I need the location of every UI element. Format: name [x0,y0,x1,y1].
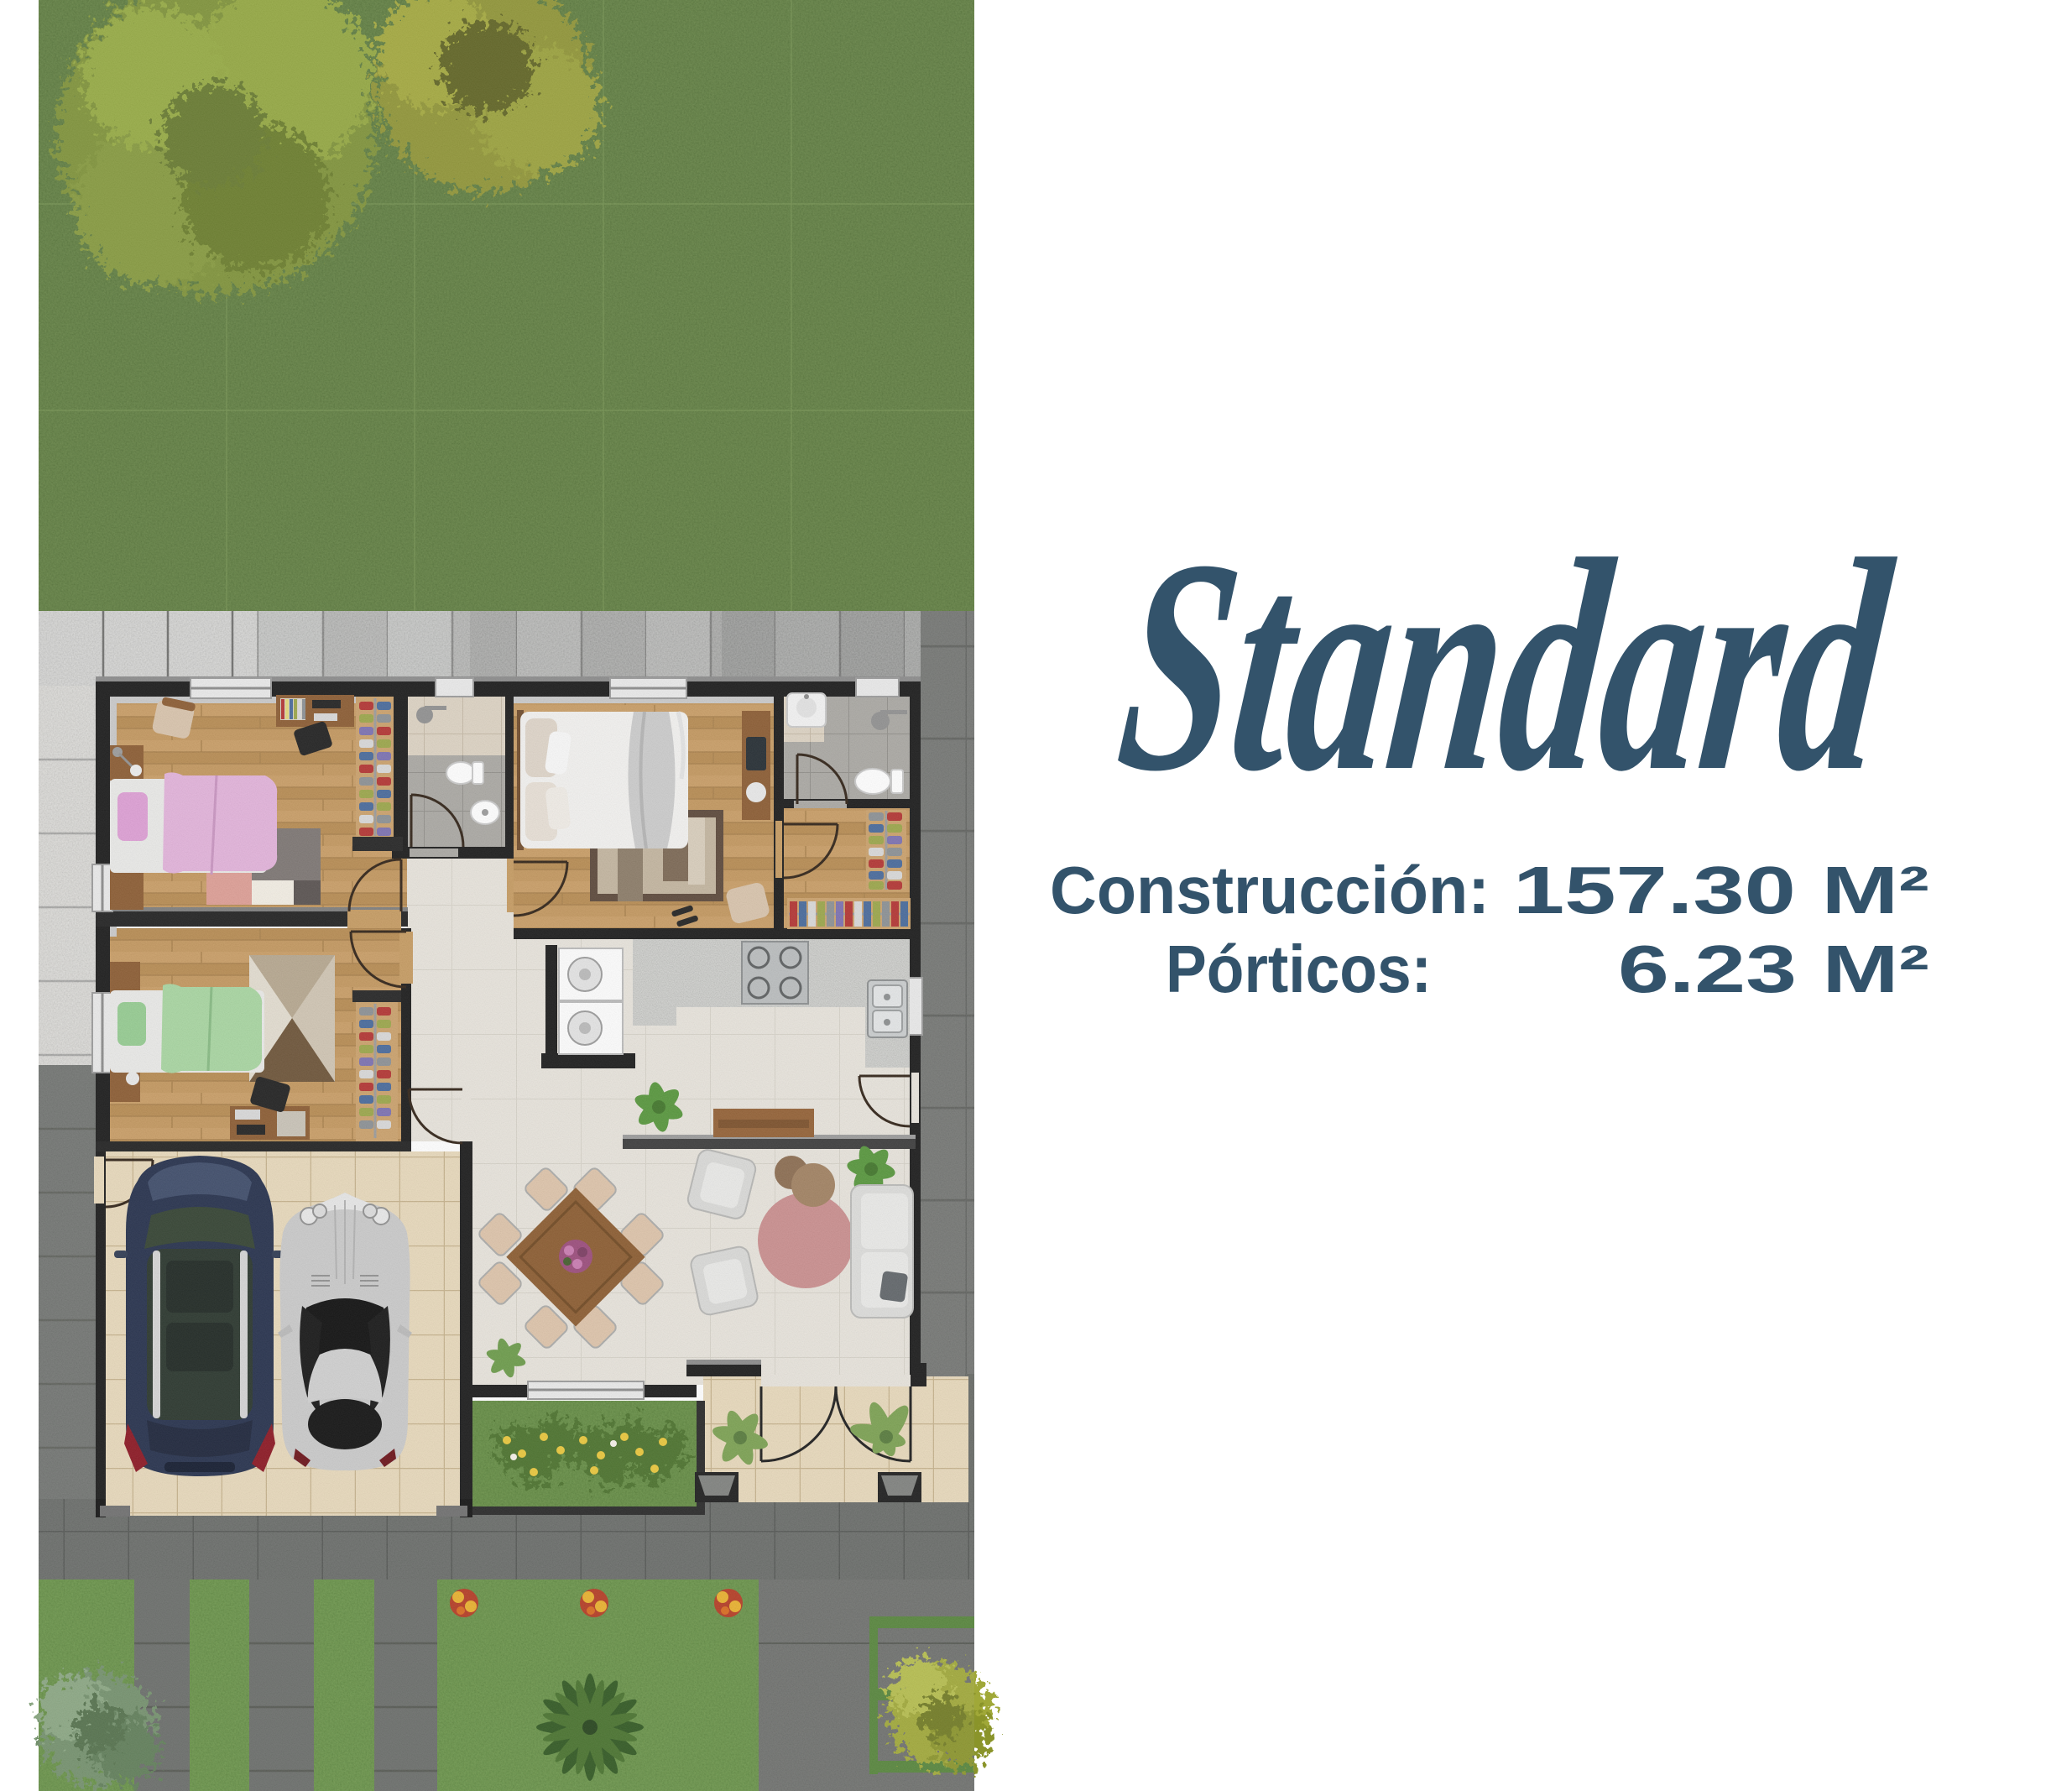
svg-text:6.23 M²: 6.23 M² [1618,932,1929,1006]
svg-text:Construcción:: Construcción: [1050,853,1490,927]
svg-text:157.30 M²: 157.30 M² [1513,853,1929,927]
svg-text:Standard: Standard [1107,497,1905,834]
svg-text:Pórticos:: Pórticos: [1166,932,1432,1006]
